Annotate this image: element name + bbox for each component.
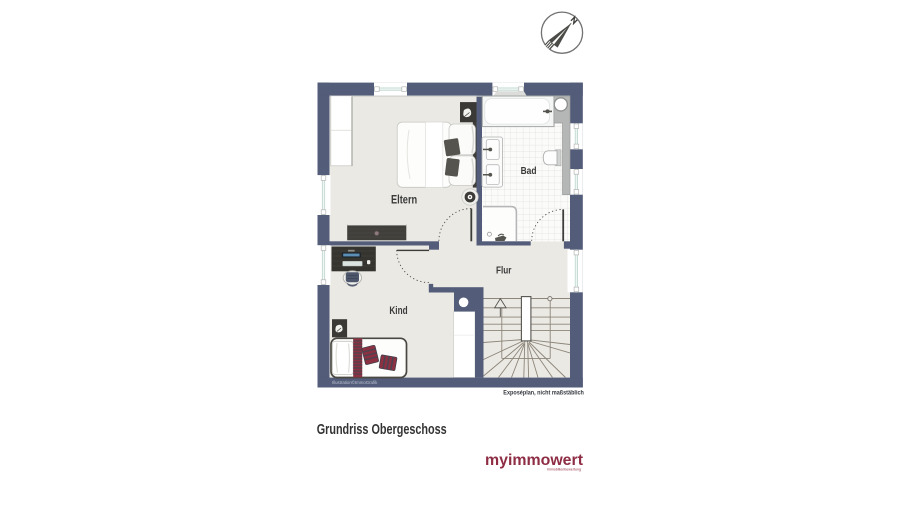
svg-text:Flur: Flur bbox=[496, 265, 511, 276]
svg-text:Immobilienbewertung: Immobilienbewertung bbox=[547, 468, 581, 472]
svg-text:Grundriss Obergeschoss: Grundriss Obergeschoss bbox=[317, 421, 447, 438]
svg-text:Exposéplan, nicht maßstäblich: Exposéplan, nicht maßstäblich bbox=[503, 390, 584, 397]
svg-text:Eltern: Eltern bbox=[391, 192, 417, 206]
svg-text:Illustration©ImmoGrafik: Illustration©ImmoGrafik bbox=[332, 379, 378, 385]
svg-text:Bad: Bad bbox=[521, 166, 537, 177]
svg-text:Kind: Kind bbox=[389, 305, 407, 317]
svg-text:myimmowert: myimmowert bbox=[485, 452, 583, 469]
